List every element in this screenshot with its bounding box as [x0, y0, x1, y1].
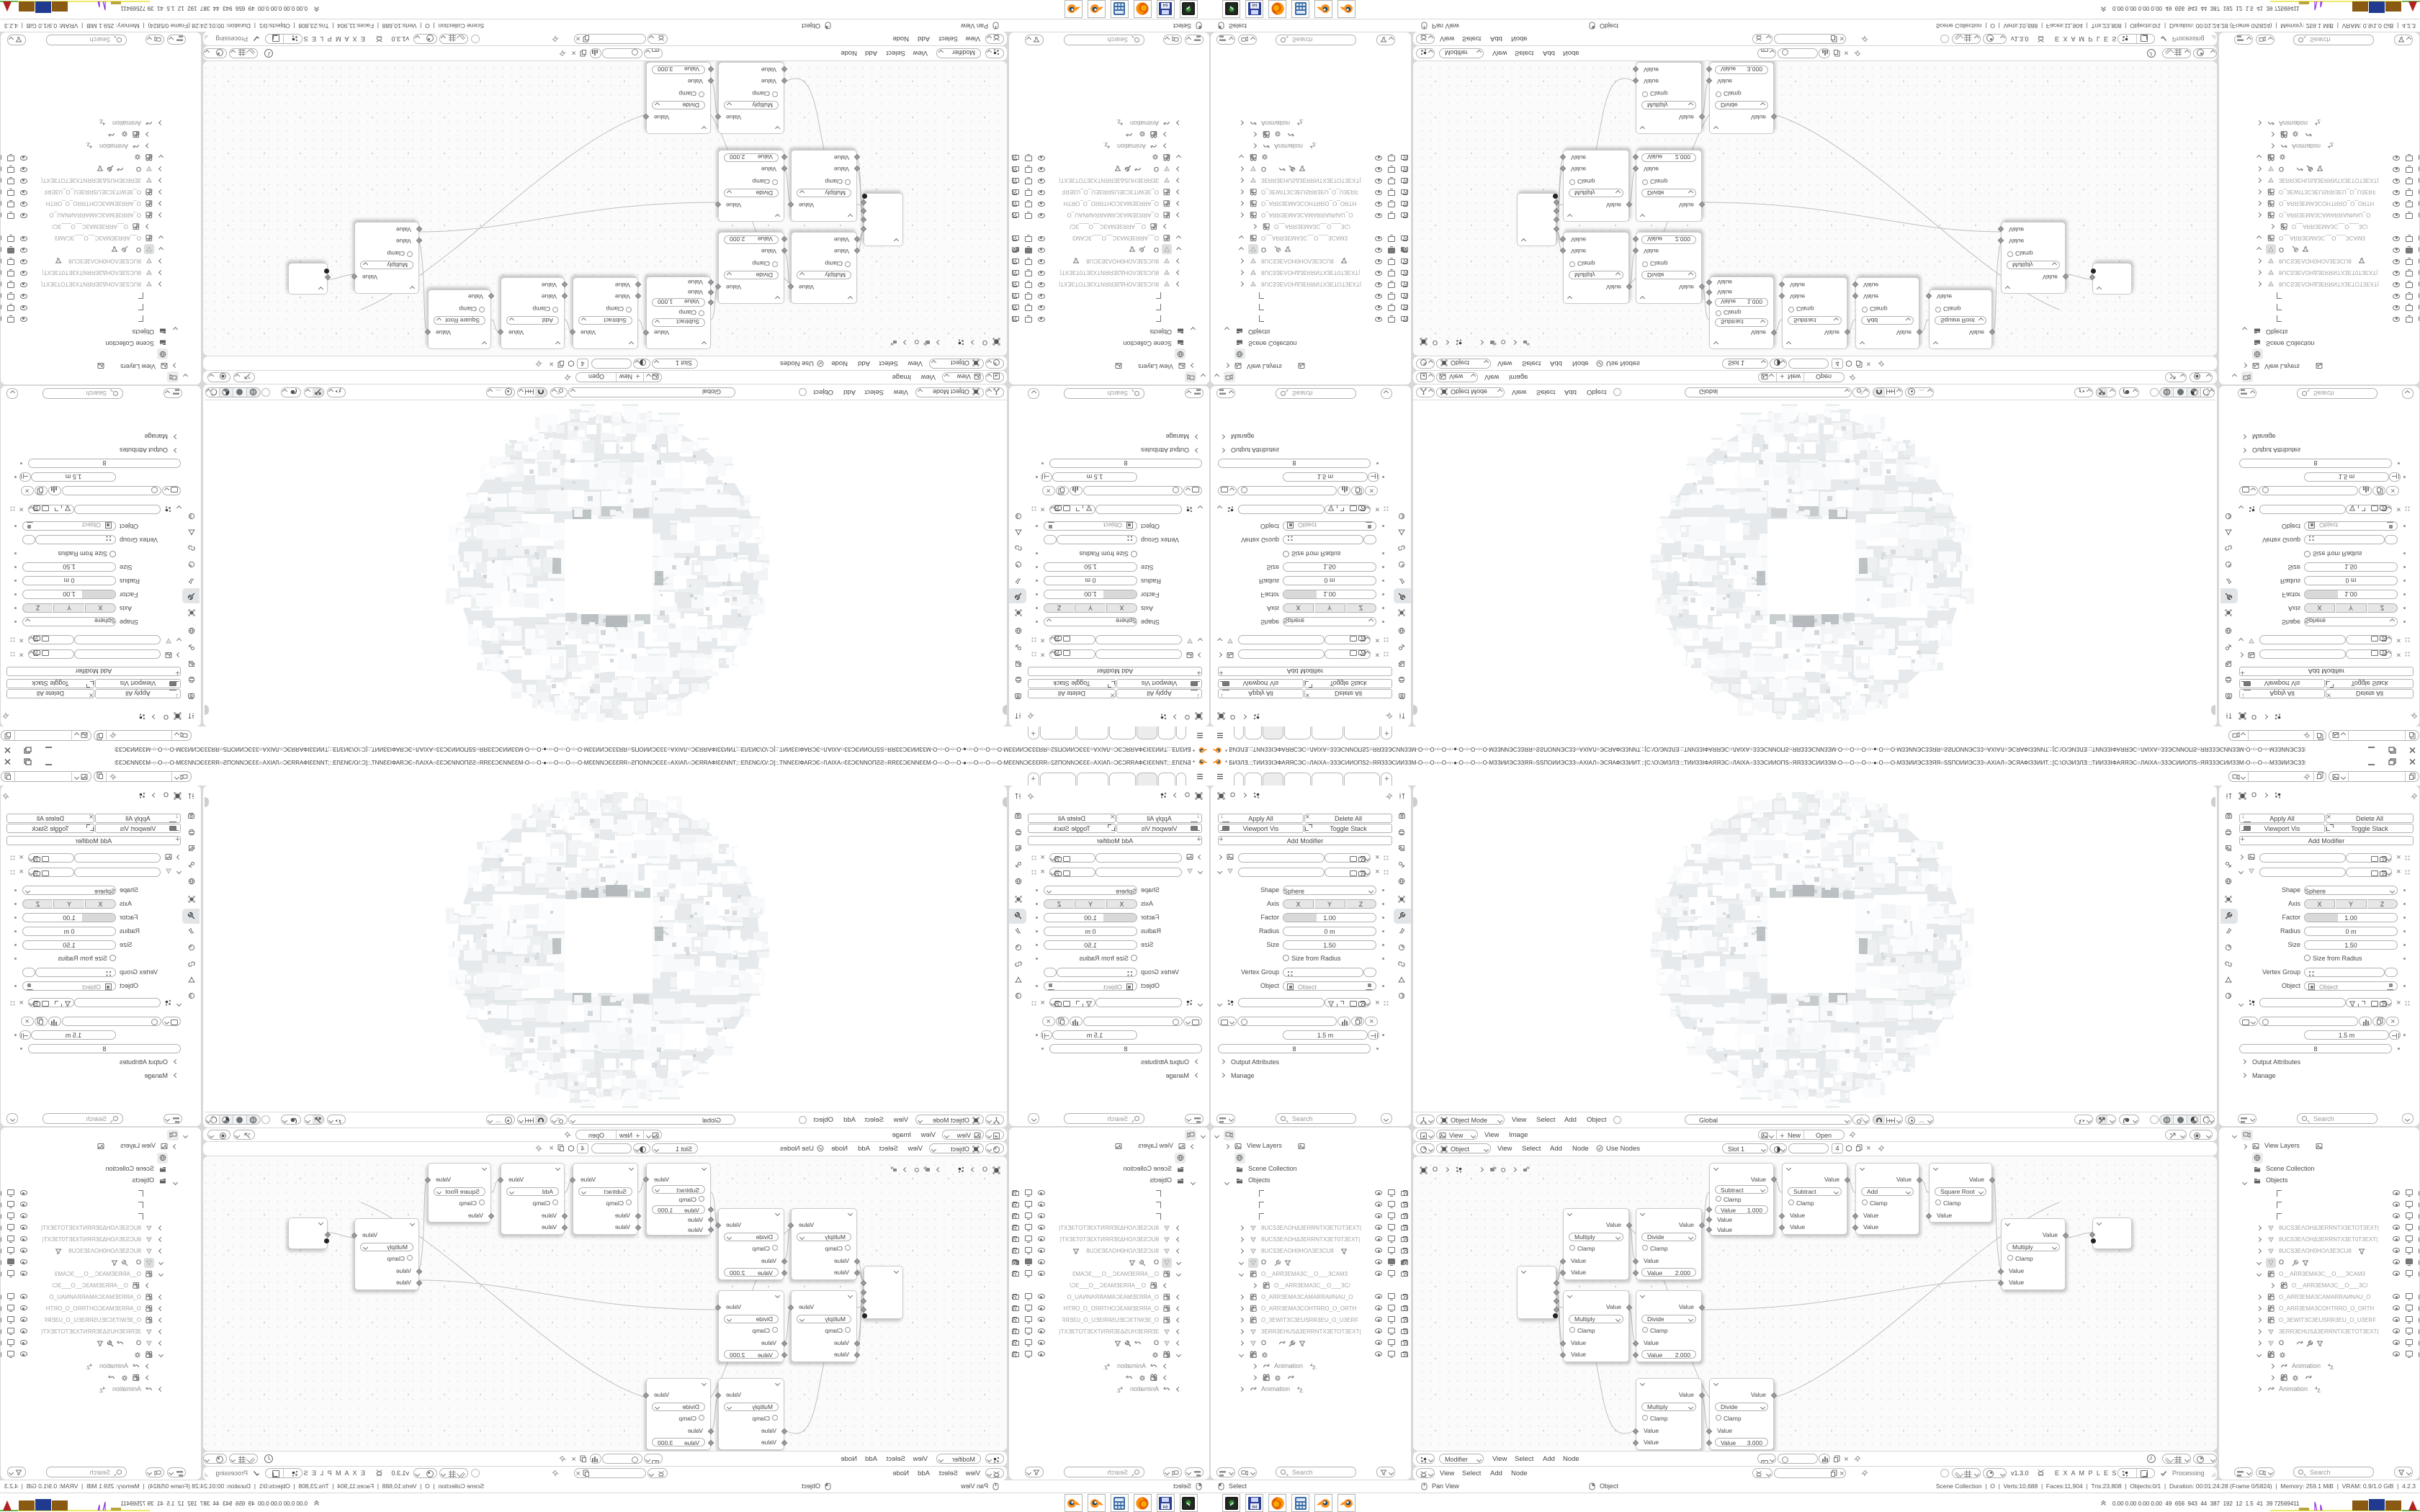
svg-text:64: 64: [1162, 1506, 1168, 1510]
svg-text:64: 64: [1162, 2, 1168, 6]
svg-text:64: 64: [1252, 2, 1258, 6]
svg-text:64: 64: [1252, 1506, 1258, 1510]
